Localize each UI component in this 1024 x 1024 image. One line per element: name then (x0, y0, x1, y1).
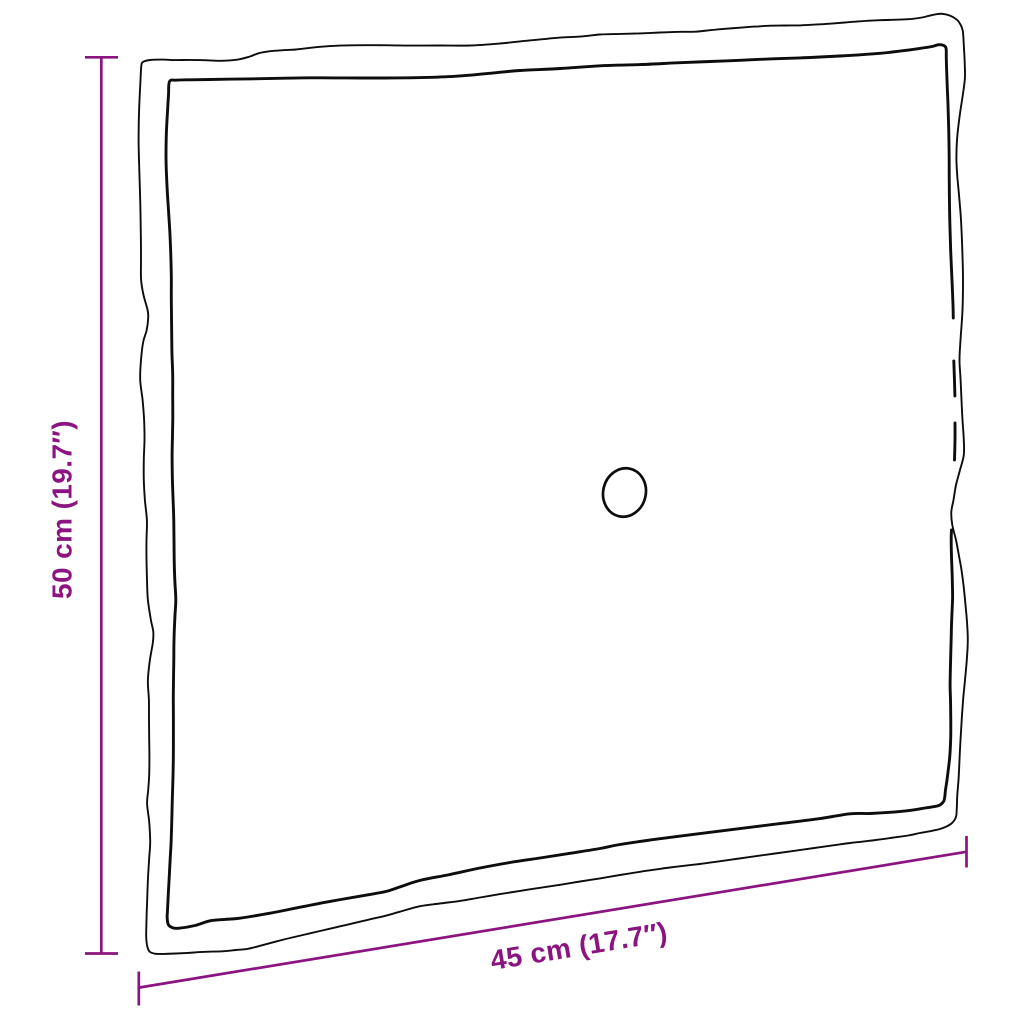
svg-text:50 cm (19.7″): 50 cm (19.7″) (47, 420, 78, 599)
